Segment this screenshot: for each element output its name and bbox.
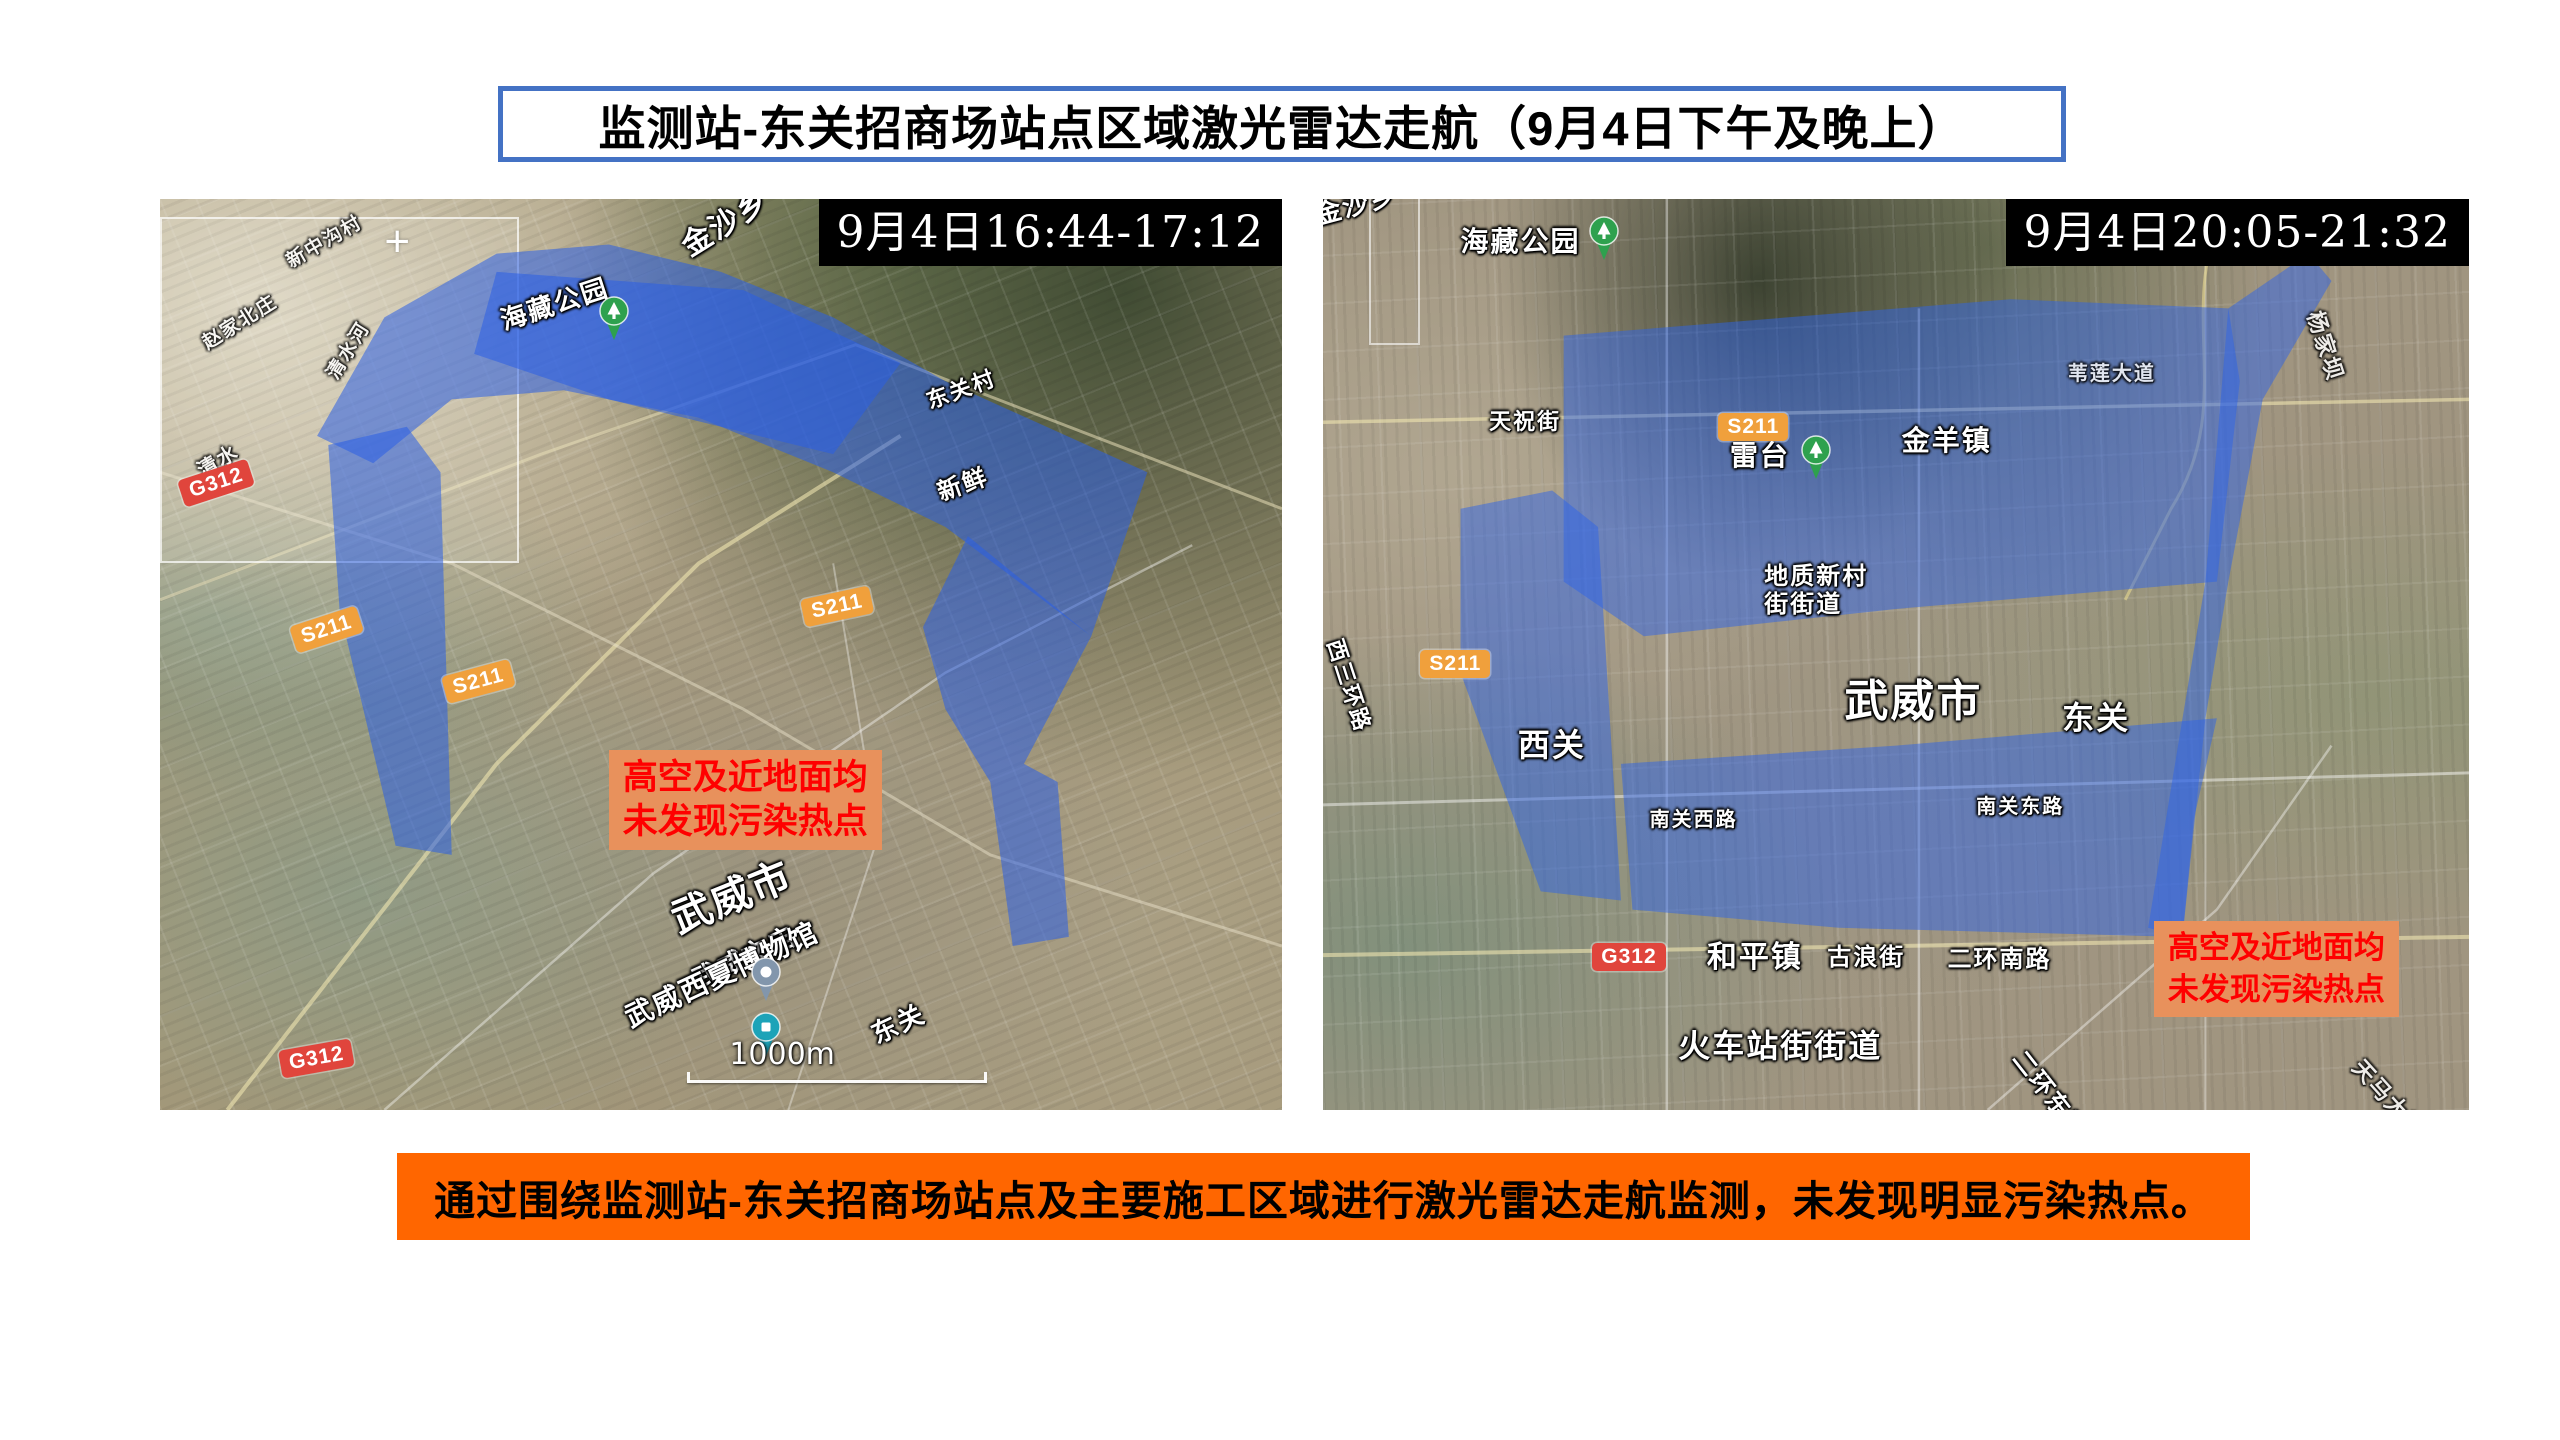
park-pin-icon[interactable] [1586,214,1622,267]
station-pin-icon[interactable] [748,955,784,1008]
note-line-2: 未发现污染热点 [2168,969,2385,1011]
park-pin-icon[interactable] [596,294,632,347]
page-title-box: 监测站-东关招商场站点区域激光雷达走航（9月4日下午及晚上） [498,86,2066,162]
timestamp-badge: 9月4日16:44-17:12 [819,199,1282,266]
no-pollution-note: 高空及近地面均 未发现污染热点 [609,750,882,850]
no-pollution-note: 高空及近地面均 未发现污染热点 [2154,921,2399,1017]
note-line-1: 高空及近地面均 [2168,927,2385,969]
map-place-label: 东关 [2062,700,2130,737]
scale-bar [687,1080,987,1083]
note-line-2: 未发现污染热点 [623,800,868,844]
map-place-label: 南关西路 [1650,809,1738,832]
map-afternoon-pass[interactable]: + 金沙乡新中沟村赵家北庄清水河清水海藏公园东关村新鲜武威市武威文庙武威西夏博物… [160,199,1282,1110]
park-pin-icon[interactable] [1798,433,1834,486]
map-place-label: 苇莲大道 [2068,363,2156,386]
map-evening-pass[interactable]: 金沙乡海藏公园天祝街雷台金羊镇杨家坝苇莲大道地质新村街街道武威市东关西关南关西路… [1323,199,2469,1110]
map-place-label: 西关 [1518,727,1586,764]
map-place-label: 金羊镇 [1902,425,1992,457]
slide-canvas: 监测站-东关招商场站点区域激光雷达走航（9月4日下午及晚上） + 金沙乡新中沟村… [0,0,2560,1440]
conclusion-text: 通过围绕监测站-东关招商场站点及主要施工区域进行激光雷达走航监测，未发现明显污染… [434,1167,2213,1227]
map-place-label: 二环南路 [1948,946,2052,974]
road-badge-s211: S211 [1420,650,1490,678]
map-place-label: 火车站街街道 [1678,1028,1882,1065]
map-place-label: 古浪街 [1827,944,1905,972]
map-place-label: 天祝街 [1489,409,1561,434]
conclusion-banner: 通过围绕监测站-东关招商场站点及主要施工区域进行激光雷达走航监测，未发现明显污染… [397,1153,2250,1240]
page-title: 监测站-东关招商场站点区域激光雷达走航（9月4日下午及晚上） [599,90,1966,159]
timestamp-badge: 9月4日20:05-21:32 [2006,199,2469,266]
scale-label: 1000m [729,1037,835,1072]
map-place-label: 地质新村街街道 [1764,563,1868,618]
map-place-label: 南关东路 [1976,796,2064,819]
map-place-label: 武威市 [1844,677,1982,728]
note-line-1: 高空及近地面均 [623,756,868,800]
map-scale: 1000m [687,1037,987,1083]
map-place-label: 和平镇 [1707,941,1803,976]
map-place-label: 雷台 [1730,440,1790,472]
road-badge-g312: G312 [1592,943,1665,971]
map-place-label: 海藏公园 [1461,226,1581,258]
road-badge-s211: S211 [1718,413,1788,441]
